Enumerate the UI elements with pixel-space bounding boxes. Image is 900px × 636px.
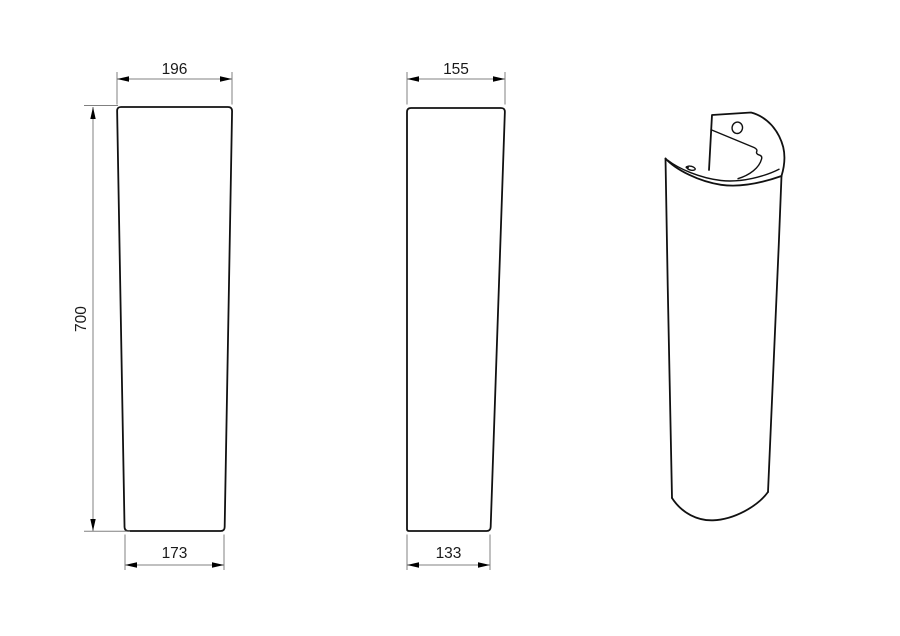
arrowhead-bottom [90,519,95,531]
side-bottom-dimension: 133 [407,535,490,571]
front-bottom-dimension: 173 [125,535,224,571]
pedestal-right-edge [768,176,782,492]
side-top-width-label: 155 [443,61,469,78]
side-view-outline [407,108,505,531]
pedestal-left-edge [666,159,673,499]
arrowhead-right [212,562,224,567]
pedestal-bottom-arc [672,492,768,520]
rim-outer-curve [666,159,782,186]
mounting-hole [731,121,744,134]
arrowhead-right [220,76,232,81]
side-bottom-width-label: 133 [436,545,462,562]
arrowhead-left [407,562,419,567]
side-view: 155 133 [407,61,505,570]
front-view: 196 173 700 [73,61,232,570]
side-top-dimension: 155 [407,61,505,105]
rim-inner-curve [668,160,780,181]
front-bottom-width-label: 173 [162,545,188,562]
arrowhead-left [407,76,419,81]
pedestal-drawing-canvas: 196 173 700 [0,0,900,636]
front-view-outline [117,107,232,531]
arrowhead-top [90,107,95,119]
arrowhead-right [478,562,490,567]
perspective-view [666,113,785,521]
front-height-label: 700 [73,306,90,332]
arrowhead-left [117,76,129,81]
arrowhead-left [125,562,137,567]
scoop-transition-edge [711,130,762,179]
front-top-width-label: 196 [162,61,188,78]
arrowhead-right [493,76,505,81]
technical-drawing-page: 196 173 700 [0,0,900,636]
front-top-dimension: 196 [117,61,232,105]
